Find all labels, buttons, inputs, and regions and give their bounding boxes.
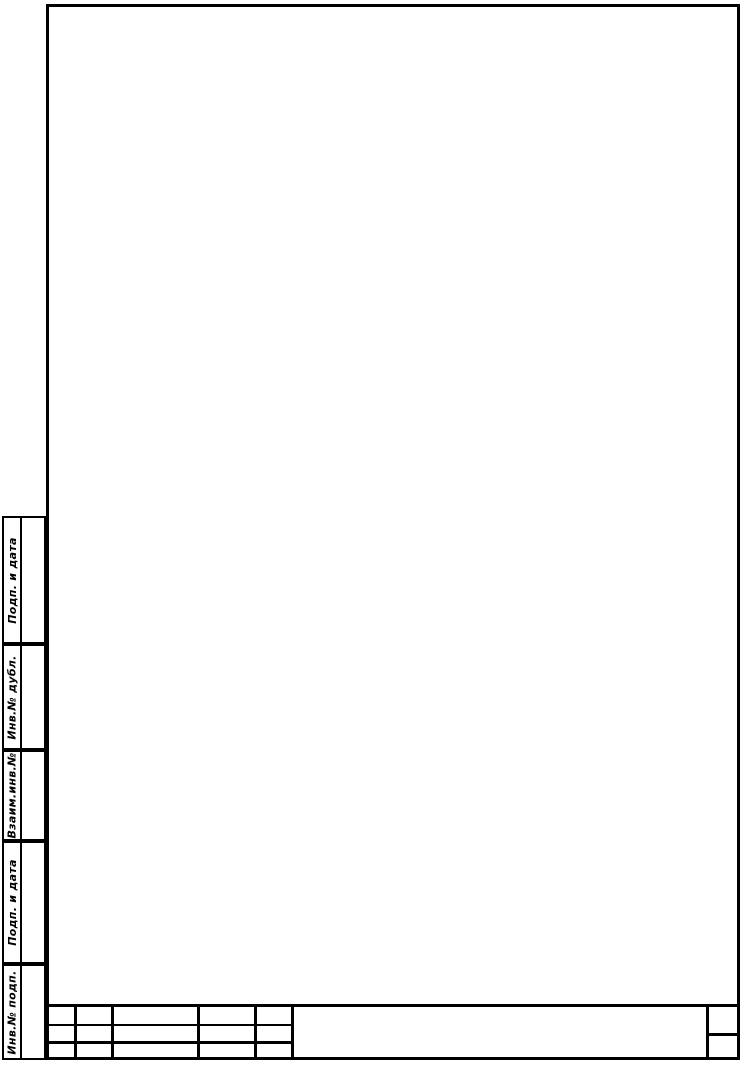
side-column-section-inv-no-podp: Инв.№ подп. xyxy=(2,964,46,1060)
side-column-section-podp-i-data-top: Подп. и дата xyxy=(2,516,46,644)
side-section-label: Взаим.инв.№ xyxy=(4,752,20,839)
side-column-section-inv-no-dubl: Инв.№ дубл. xyxy=(2,644,46,750)
side-section-blank-field xyxy=(22,646,44,748)
side-section-label-text: Подп. и дата xyxy=(6,537,19,624)
sheet-number-cell xyxy=(709,1036,737,1057)
drawing-frame xyxy=(46,4,740,1060)
side-section-label-text: Инв.№ дубл. xyxy=(6,655,19,739)
side-section-label: Инв.№ подп. xyxy=(4,966,20,1058)
title-block-column-divider xyxy=(197,1007,200,1057)
side-section-blank-field xyxy=(22,518,44,642)
side-column-section-podp-i-data-bottom: Подп. и дата xyxy=(2,841,46,964)
sheet-label-cell xyxy=(709,1007,737,1033)
side-section-blank-field xyxy=(22,843,44,962)
side-section-label-text: Подп. и дата xyxy=(6,859,19,946)
designation-cell xyxy=(297,1007,706,1057)
side-section-label: Подп. и дата xyxy=(4,843,20,962)
side-section-blank-field xyxy=(22,752,44,839)
title-block-row-divider xyxy=(49,1041,294,1044)
side-section-label: Инв.№ дубл. xyxy=(4,646,20,748)
title-block-row-divider xyxy=(49,1024,294,1026)
side-section-label-text: Инв.№ подп. xyxy=(6,970,19,1054)
side-column-section-vzaim-inv-no: Взаим.инв.№ xyxy=(2,750,46,841)
title-block-column-divider xyxy=(254,1007,257,1057)
side-section-blank-field xyxy=(22,966,44,1058)
side-section-label: Подп. и дата xyxy=(4,518,20,642)
title-block-column-divider xyxy=(111,1007,114,1057)
drawing-sheet: Подп. и дата Инв.№ дубл. Взаим.инв.№ Под… xyxy=(0,0,747,1065)
title-block xyxy=(46,1004,740,1060)
title-block-column-divider xyxy=(74,1007,77,1057)
title-block-column-divider xyxy=(291,1007,294,1057)
side-section-label-text: Взаим.инв.№ xyxy=(6,752,19,838)
